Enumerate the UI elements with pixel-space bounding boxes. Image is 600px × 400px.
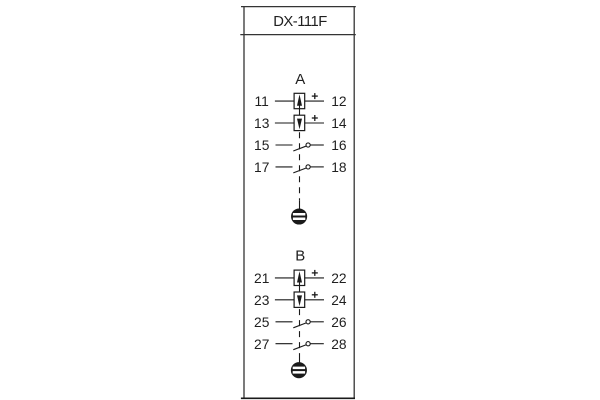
svg-text:12: 12 [331,94,346,109]
svg-text:26: 26 [331,315,347,330]
svg-text:13: 13 [254,116,270,131]
svg-text:22: 22 [331,271,346,286]
svg-text:25: 25 [254,315,270,330]
svg-text:23: 23 [254,293,270,308]
svg-text:27: 27 [254,337,269,352]
svg-text:B: B [295,248,305,265]
svg-text:15: 15 [254,138,270,153]
svg-text:11: 11 [255,94,269,109]
svg-text:28: 28 [331,337,347,352]
svg-text:14: 14 [331,116,347,131]
svg-text:A: A [295,71,305,88]
svg-text:17: 17 [254,160,269,175]
svg-text:DX-111F: DX-111F [273,14,327,30]
svg-text:16: 16 [331,138,347,153]
svg-text:18: 18 [331,160,347,175]
svg-text:24: 24 [331,293,347,308]
svg-text:21: 21 [254,271,269,286]
